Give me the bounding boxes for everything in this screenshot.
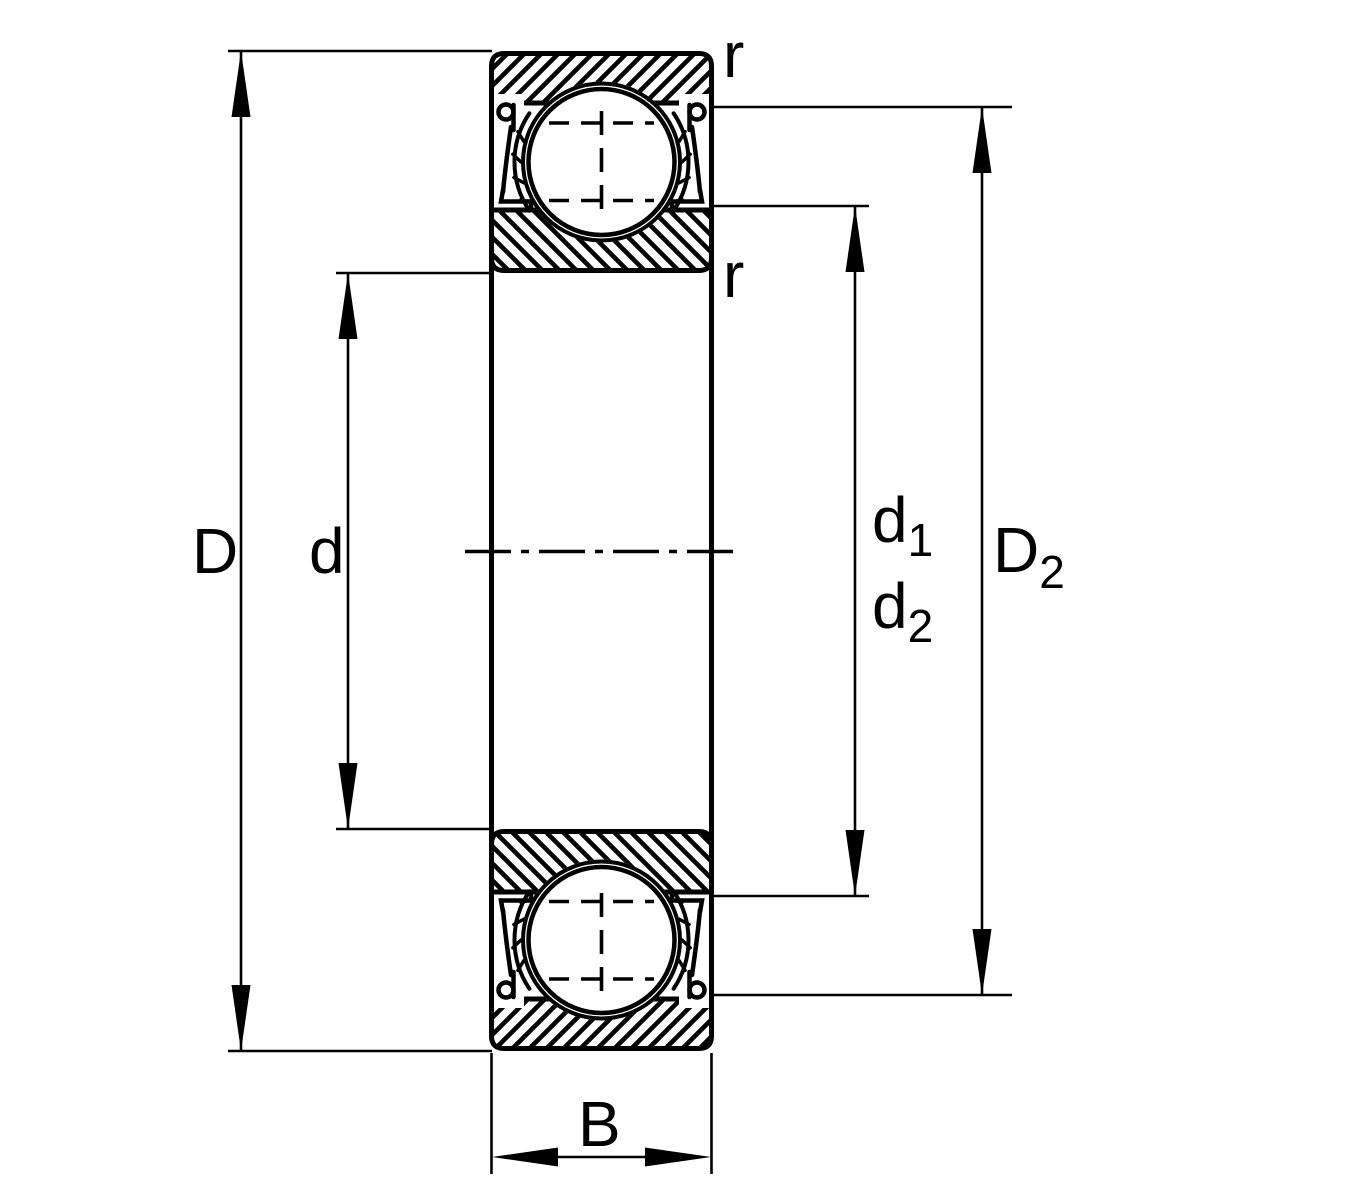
- label-chamfer-r-bottom: r: [723, 239, 744, 311]
- arrow-d-down: [339, 763, 358, 829]
- arrow-d1-up: [846, 206, 865, 272]
- label-D2: D2: [993, 514, 1065, 598]
- label-width-B: B: [578, 1088, 621, 1160]
- arrow-D2-up: [973, 107, 992, 173]
- bearing-section-bottom: [492, 832, 712, 1049]
- label-d2: d2: [872, 570, 933, 652]
- dimension-d1-d2: [846, 206, 865, 896]
- drawing-canvas: D d d1 d2 D2 B r r: [0, 0, 1350, 1200]
- arrow-d1-down: [846, 830, 865, 896]
- label-outer-diameter-D: D: [192, 515, 238, 587]
- dimension-D2: [973, 107, 992, 995]
- bearing-section-top: [492, 54, 712, 271]
- bearing-dimension-drawing: D d d1 d2 D2 B r r: [0, 0, 1350, 1200]
- arrow-D-down: [232, 985, 251, 1051]
- label-chamfer-r-top: r: [723, 19, 744, 91]
- arrow-d-up: [339, 273, 358, 339]
- arrow-D2-down: [973, 929, 992, 995]
- shield-stem: [503, 127, 511, 192]
- arrow-B-left: [492, 1148, 558, 1167]
- label-d1: d1: [872, 484, 933, 566]
- arrow-D-up: [232, 51, 251, 117]
- label-bore-diameter-d: d: [309, 515, 345, 587]
- arrow-B-right: [645, 1148, 711, 1167]
